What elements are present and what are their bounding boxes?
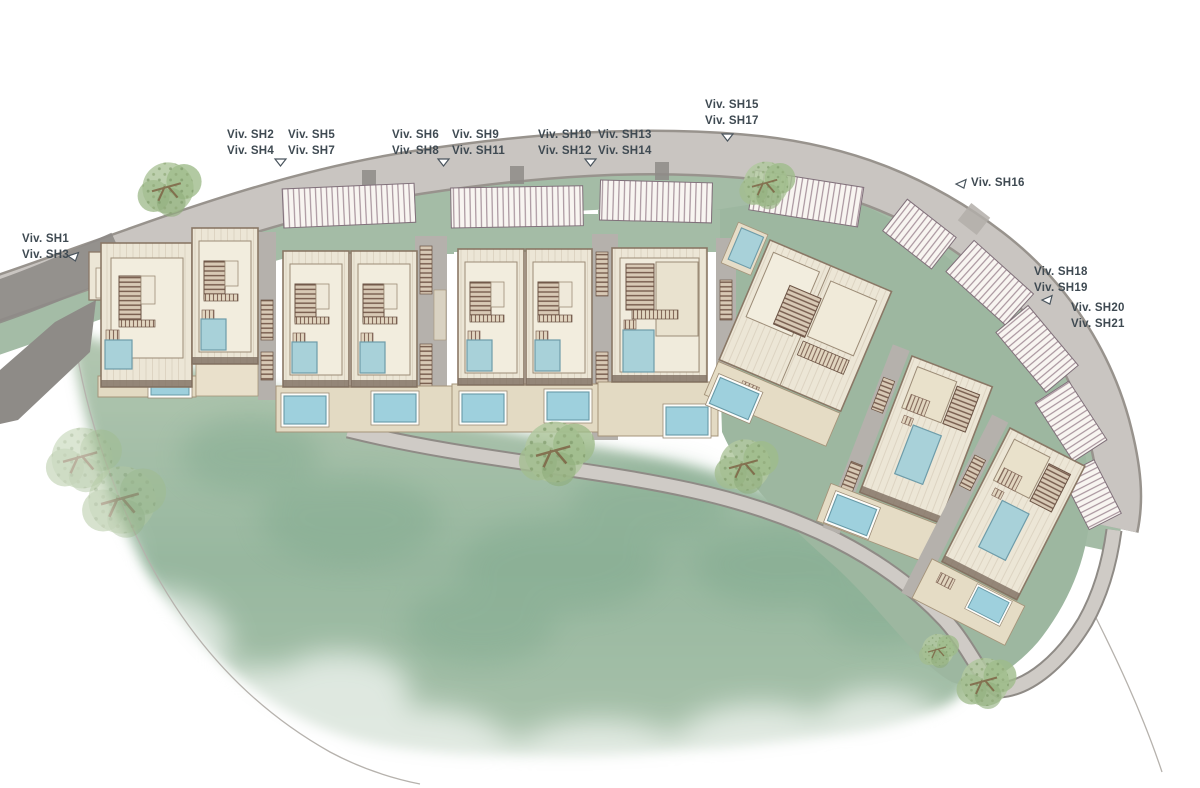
label-viv-sh18-sh19: Viv. SH18Viv. SH19 (1034, 264, 1088, 296)
label-viv-sh5-sh7: Viv. SH5Viv. SH7 (288, 127, 335, 159)
label-viv-sh6-sh8: Viv. SH6Viv. SH8 (392, 127, 439, 159)
plot-triangle-icon (956, 180, 969, 191)
entry-triangle-icon (275, 159, 286, 166)
villa-sh13-sh14 (612, 248, 707, 382)
villa-pair-sh6-sh12 (458, 249, 592, 385)
villa-sh1-sh3 (89, 228, 258, 387)
site-plan-drawing (0, 0, 1200, 788)
label-viv-sh2-sh4: Viv. SH2Viv. SH4 (227, 127, 274, 159)
villa-pair-sh2-sh7 (283, 251, 417, 387)
label-viv-sh16: Viv. SH16 (971, 175, 1025, 191)
label-viv-sh13-sh14: Viv. SH13Viv. SH14 (598, 127, 652, 159)
label-viv-sh15-sh17: Viv. SH15Viv. SH17 (705, 97, 759, 129)
label-viv-sh10-sh12: Viv. SH10Viv. SH12 (538, 127, 592, 159)
site-plan: Viv. SH1Viv. SH3 Viv. SH2Viv. SH4 Viv. S… (0, 0, 1200, 788)
label-viv-sh1-sh3: Viv. SH1Viv. SH3 (22, 231, 69, 263)
label-viv-sh9-sh11: Viv. SH9Viv. SH11 (452, 127, 505, 159)
label-viv-sh20-sh21: Viv. SH20Viv. SH21 (1071, 300, 1125, 332)
